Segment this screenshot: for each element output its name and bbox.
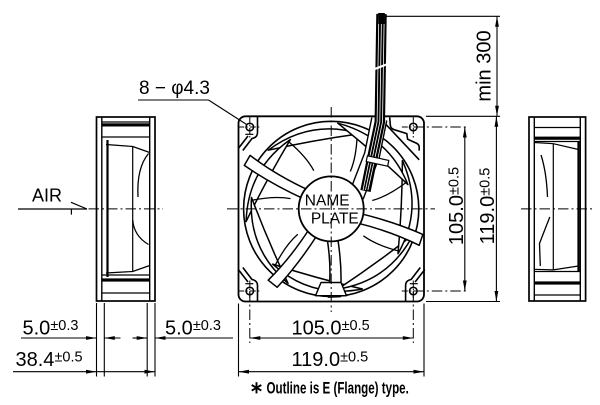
svg-text:AIR: AIR [32, 185, 62, 205]
svg-text:PLATE: PLATE [311, 211, 359, 228]
svg-text:min 300: min 300 [474, 30, 496, 101]
svg-text:NAME: NAME [305, 193, 350, 210]
svg-text:8 − φ4.3: 8 − φ4.3 [139, 78, 210, 99]
svg-text:Outline is E (Flange) type.: Outline is E (Flange) type. [267, 380, 409, 399]
